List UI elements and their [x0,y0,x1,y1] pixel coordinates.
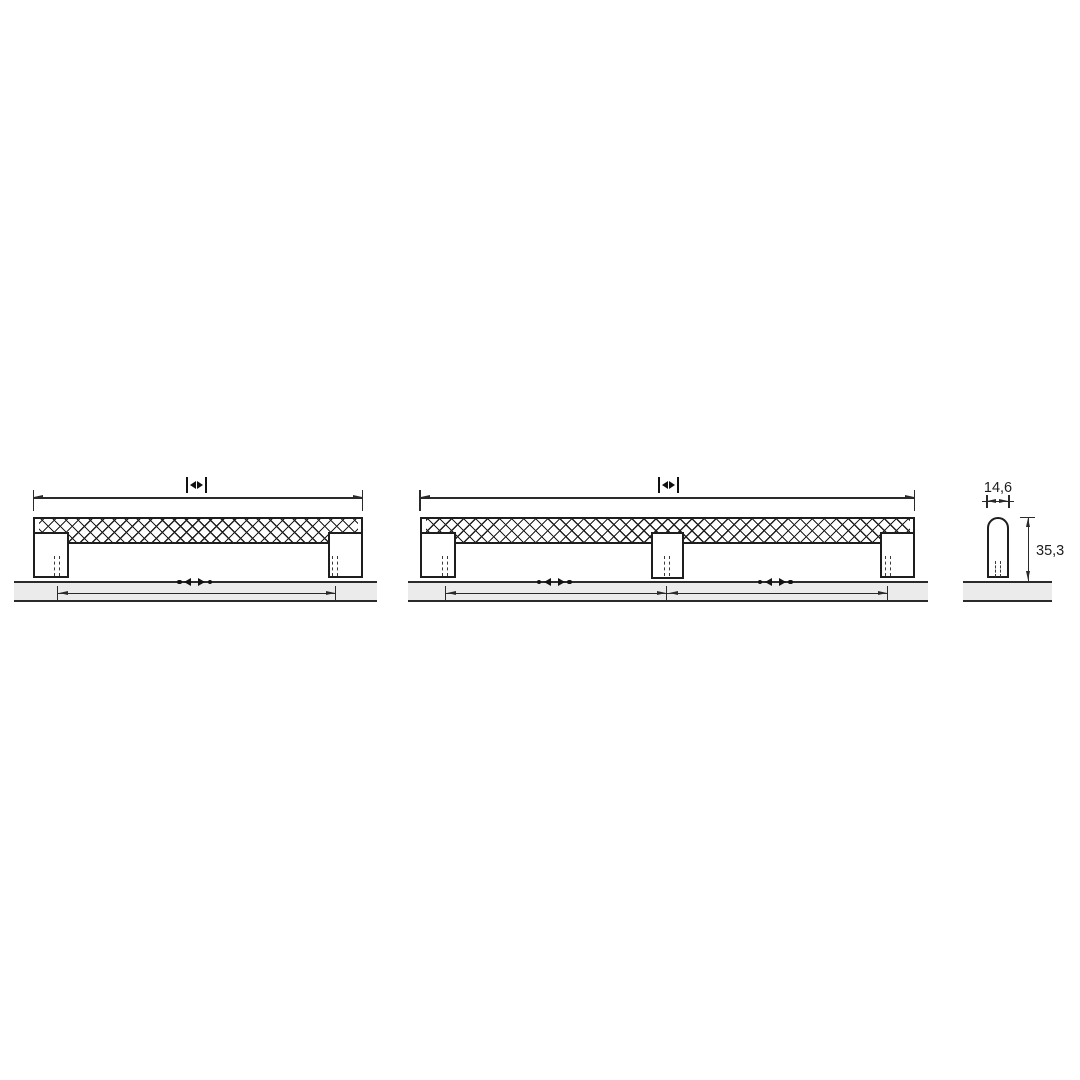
symbol-bar [658,477,660,493]
arrowhead-left-icon [987,499,996,503]
technical-drawing-page: 14,6 35,3 [0,0,1080,1080]
mounting-foot-left [420,532,456,578]
symbol-dot [177,580,182,585]
overall-length-dimension-line [33,497,363,498]
mounting-panel [963,581,1052,603]
symbol-arrow-right [779,578,786,586]
center-distance-dimension-line [667,593,888,594]
symbol-arrow-left [184,578,191,586]
arrowhead-up-icon [1026,518,1030,527]
center-distance-dimension-line [446,593,667,594]
center-distance-dimension-line [58,593,337,594]
symbol-bar [205,477,207,493]
symbol-arrow-left [662,481,668,489]
symbol-bar [186,477,188,493]
knurled-bar [33,517,363,544]
arrowhead-left-icon [421,495,430,499]
symbol-arrow-right [558,578,565,586]
screw-hole-hidden-line [664,556,670,576]
screw-hole-hidden-line [332,556,338,576]
arrowhead-right-icon [999,499,1008,503]
screw-hole-hidden-line [54,556,60,576]
length-varies-icon [186,477,207,493]
arrowhead-right-icon [353,495,362,499]
extension-line [362,490,363,511]
knurl-hatch-pattern [39,519,358,542]
overall-length-dimension-line [420,497,915,498]
symbol-dot [758,580,763,585]
screw-hole-hidden-line [995,561,1001,577]
mounting-foot-left [33,532,69,578]
symbol-arrow-left [190,481,196,489]
screw-hole-hidden-line [885,556,891,576]
symbol-arrow-left [765,578,772,586]
arrowhead-left-icon [669,591,678,595]
symbol-arrow-left [544,578,551,586]
screw-hole-hidden-line [442,556,448,576]
symbol-dot [567,580,572,585]
arrowhead-left-icon [59,591,68,595]
symbol-dot [788,580,793,585]
symbol-dot [208,580,213,585]
center-distance-varies-icon [537,578,572,586]
extension-line [1008,495,1009,508]
extension-line [419,490,420,511]
center-distance-varies-icon [177,578,212,586]
arrowhead-right-icon [878,591,887,595]
width-dimension-label: 14,6 [975,481,1021,496]
arrowhead-right-icon [657,591,666,595]
arrowhead-right-icon [326,591,335,595]
symbol-arrow-right [198,578,205,586]
symbol-arrow-right [197,481,203,489]
extension-line [914,490,915,511]
symbol-arrow-right [669,481,675,489]
center-distance-varies-icon [758,578,793,586]
symbol-bar [677,477,679,493]
arrowhead-down-icon [1026,571,1030,580]
extension-line [33,490,34,511]
arrowhead-left-icon [447,591,456,595]
height-dimension-label: 35,3 [1036,544,1064,559]
arrowhead-left-icon [34,495,43,499]
length-varies-icon [658,477,679,493]
arrowhead-right-icon [905,495,914,499]
symbol-dot [537,580,542,585]
